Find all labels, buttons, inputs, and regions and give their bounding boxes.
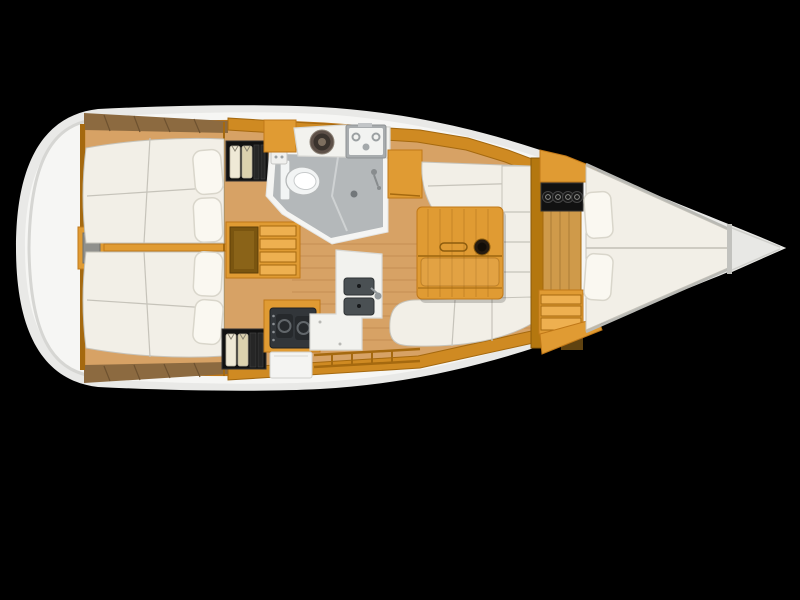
basin-tap-dot	[275, 156, 278, 159]
pillow	[193, 251, 223, 296]
pillow	[192, 149, 224, 195]
sink-drain	[357, 284, 361, 288]
bottle	[553, 192, 564, 203]
shower-drain	[351, 191, 358, 198]
aft-cabins-divider-beam	[84, 244, 232, 251]
pillow	[192, 299, 224, 345]
sink-drain	[357, 304, 361, 308]
pillow	[193, 197, 223, 242]
round-basin-drain	[318, 138, 326, 146]
wardrobe-port	[226, 141, 268, 181]
sink-drain	[363, 144, 370, 151]
stove-knob	[272, 331, 275, 334]
vanity-side-cabinet	[264, 120, 296, 152]
aft-cabin-port	[83, 138, 224, 243]
aft-cabin-starboard	[83, 251, 224, 357]
step-tread	[541, 306, 581, 316]
floorplan-canvas	[0, 0, 800, 600]
hanging-garment	[250, 333, 256, 367]
bottle-rack	[541, 183, 583, 211]
wardrobe-starboard	[222, 329, 266, 369]
shower-head	[377, 186, 381, 190]
companionway-step	[260, 239, 296, 249]
head-side-locker	[388, 150, 422, 198]
stove-knob	[272, 315, 275, 318]
sink-unit-basin	[349, 128, 383, 155]
mini-washbasin	[271, 151, 287, 164]
locker-cabinet	[388, 150, 422, 198]
pillow	[583, 253, 613, 301]
bottle	[543, 192, 554, 203]
sink-unit-hinge	[358, 123, 372, 127]
v-berth-foot-board	[727, 224, 732, 274]
companionway	[226, 222, 300, 278]
counter-latch	[339, 343, 342, 346]
stove-knob	[272, 323, 275, 326]
bottle	[572, 192, 583, 203]
pillow	[583, 191, 613, 239]
companionway-step	[260, 265, 296, 275]
table-center-panel	[421, 258, 499, 286]
companionway-step	[260, 226, 296, 236]
companionway-well-inner	[234, 231, 254, 269]
boat-floorplan-diagram	[0, 0, 800, 600]
stove-knob	[272, 339, 275, 342]
hanging-garment	[258, 333, 263, 367]
settee-forward-facing-aft	[502, 166, 532, 306]
shower-mixer	[371, 169, 377, 175]
basin-tap-dot	[281, 156, 284, 159]
counter-latch	[319, 321, 322, 324]
vanity-counter	[264, 120, 390, 158]
companionway-step	[260, 252, 296, 262]
step-tread	[541, 295, 581, 304]
hanging-garment	[254, 145, 259, 179]
cup-holder-hole	[478, 243, 487, 252]
